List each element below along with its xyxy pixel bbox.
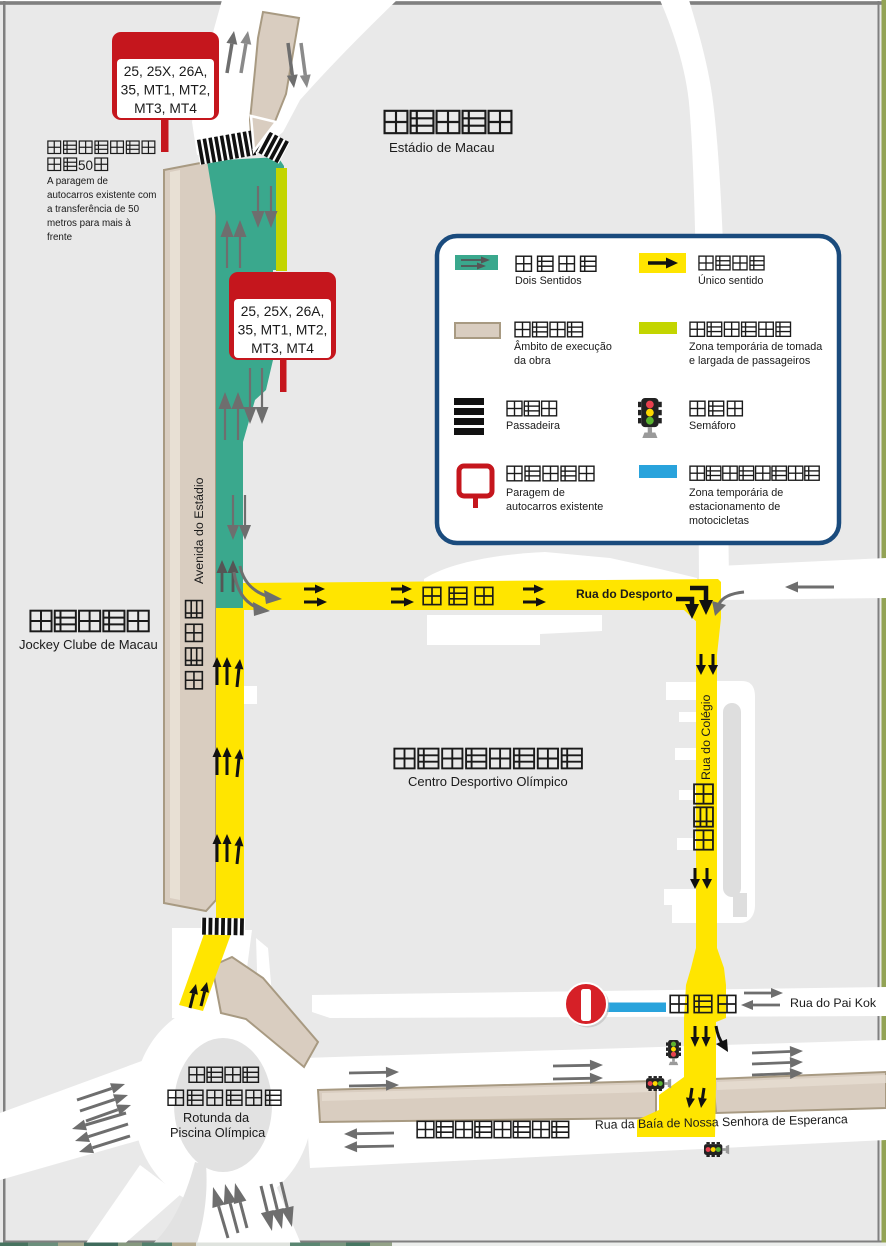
- svg-text:frente: frente: [47, 232, 73, 243]
- svg-text:Zona temporária de tomada: Zona temporária de tomada: [689, 341, 822, 353]
- svg-text:e largada de passageiros: e largada de passageiros: [689, 355, 811, 367]
- svg-text:Rua do Pai Kok: Rua do Pai Kok: [790, 996, 877, 1010]
- svg-text:Centro Desportivo Olímpico: Centro Desportivo Olímpico: [408, 774, 568, 789]
- svg-text:Passadeira: Passadeira: [506, 420, 560, 432]
- svg-text:da obra: da obra: [514, 355, 551, 367]
- svg-text:autocarros existente: autocarros existente: [506, 501, 603, 513]
- svg-text:Rua do Colégio: Rua do Colégio: [699, 694, 713, 780]
- svg-text:35, MT1, MT2,: 35, MT1, MT2,: [121, 83, 211, 98]
- svg-text:35, MT1, MT2,: 35, MT1, MT2,: [238, 323, 328, 338]
- svg-text:motocicletas: motocicletas: [689, 515, 750, 527]
- svg-text:Paragem de: Paragem de: [506, 487, 565, 499]
- svg-text:Zona temporária de: Zona temporária de: [689, 487, 783, 499]
- svg-text:estacionamento de: estacionamento de: [689, 501, 780, 513]
- svg-text:Semáforo: Semáforo: [689, 420, 736, 432]
- svg-text:metros para mais à: metros para mais à: [47, 218, 131, 229]
- svg-text:MT3, MT4: MT3, MT4: [251, 341, 314, 356]
- svg-text:MT3, MT4: MT3, MT4: [134, 101, 197, 116]
- svg-text:Rotunda da: Rotunda da: [183, 1110, 250, 1125]
- svg-text:Âmbito de execução: Âmbito de execução: [514, 340, 612, 353]
- svg-text:50: 50: [78, 158, 93, 173]
- svg-text:a transferência de 50: a transferência de 50: [47, 204, 140, 215]
- svg-text:A paragem de: A paragem de: [47, 176, 109, 187]
- svg-text:Piscina Olímpica: Piscina Olímpica: [170, 1125, 266, 1140]
- svg-text:25, 25X, 26A,: 25, 25X, 26A,: [124, 64, 208, 79]
- svg-text:autocarros existente com: autocarros existente com: [47, 190, 156, 201]
- svg-text:Único sentido: Único sentido: [698, 274, 763, 287]
- svg-text:Dois Sentidos: Dois Sentidos: [515, 275, 582, 287]
- svg-text:Jockey Clube de Macau: Jockey Clube de Macau: [19, 637, 158, 652]
- svg-text:Rua do Desporto: Rua do Desporto: [576, 587, 673, 601]
- svg-text:Avenida do Estádio: Avenida do Estádio: [192, 477, 206, 584]
- svg-text:Estádio de Macau: Estádio de Macau: [389, 140, 495, 155]
- svg-text:25, 25X, 26A,: 25, 25X, 26A,: [241, 304, 325, 319]
